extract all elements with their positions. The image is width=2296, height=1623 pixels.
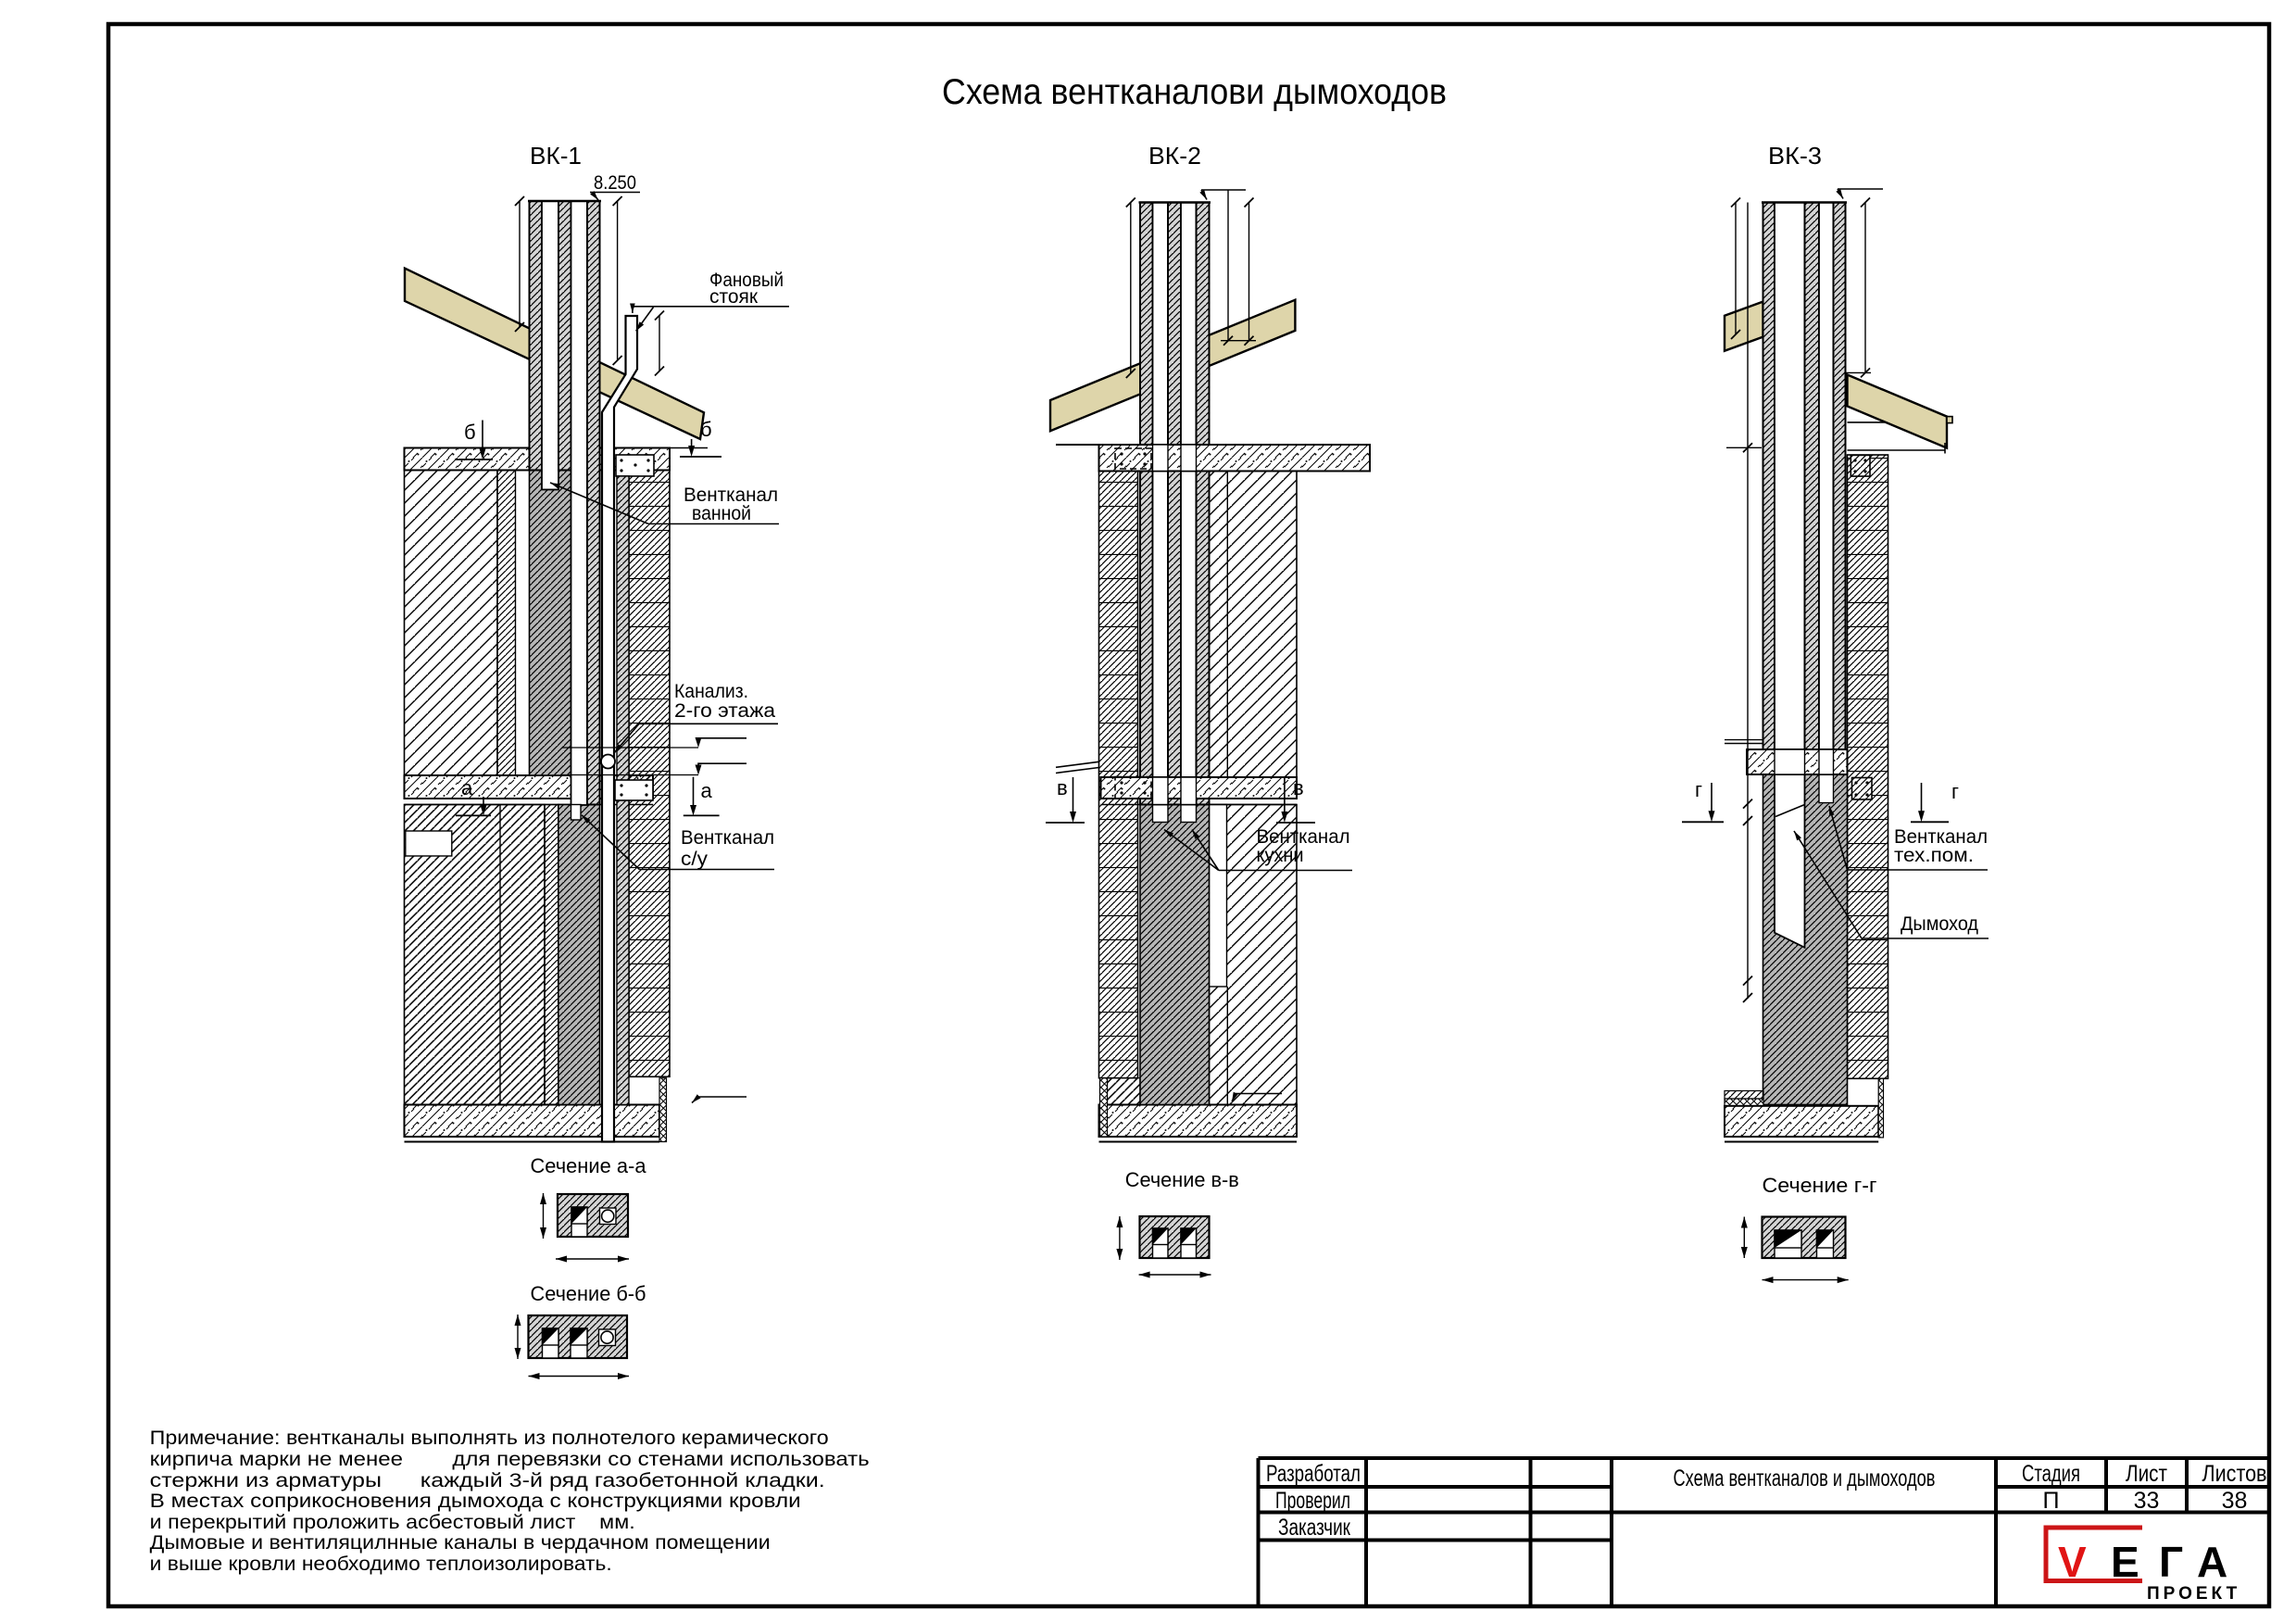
svg-text:Листов: Листов [2202, 1461, 2267, 1487]
svg-text:Е: Е [2111, 1538, 2139, 1586]
svg-text:2-го этажа: 2-го этажа [674, 700, 775, 722]
svg-text:ПРОЕКТ: ПРОЕКТ [2147, 1584, 2240, 1604]
svg-text:Схема вентканалови дымоходов: Схема вентканалови дымоходов [942, 72, 1447, 112]
svg-text:стержни из арматуры кажды: стержни из арматуры каждый 3-й ряд газоб… [150, 1470, 825, 1491]
svg-text:Вентканал: Вентканал [681, 827, 774, 849]
svg-text:Г: Г [2159, 1538, 2183, 1586]
svg-text:Дымоход: Дымоход [1901, 913, 1978, 935]
svg-text:а: а [701, 779, 713, 802]
svg-text:кирпича марки не менее: кирпича марки не менее для перевязки со … [150, 1449, 870, 1470]
svg-text:тех.пом.: тех.пом. [1894, 845, 1974, 866]
svg-text:Дымовые и вентиляцилнные канал: Дымовые и вентиляцилнные каналы в чердач… [150, 1532, 771, 1554]
svg-text:стояк: стояк [709, 286, 759, 308]
svg-text:8.250: 8.250 [594, 172, 636, 194]
svg-text:П: П [2043, 1488, 2060, 1514]
svg-text:а: а [461, 776, 473, 799]
svg-text:Проверил: Проверил [1275, 1488, 1350, 1514]
svg-text:ВК-2: ВК-2 [1148, 142, 1201, 170]
svg-text:Сечение в-в: Сечение в-в [1125, 1168, 1239, 1191]
svg-text:г: г [1695, 778, 1702, 801]
svg-text:г: г [1951, 780, 1959, 803]
svg-text:Заказчик: Заказчик [1278, 1515, 1351, 1541]
svg-text:А: А [2197, 1538, 2227, 1586]
svg-text:38: 38 [2222, 1488, 2248, 1514]
svg-text:В местах соприкосновения дымох: В местах соприкосновения дымохода с конс… [150, 1491, 801, 1512]
svg-text:Разработал: Разработал [1266, 1461, 1361, 1487]
svg-text:ванной: ванной [692, 503, 751, 524]
svg-text:и перекрытий проложить асбесто: и перекрытий проложить асбестовый лист м… [150, 1512, 635, 1533]
svg-text:в: в [1293, 776, 1304, 799]
svg-text:Сечение г-г: Сечение г-г [1763, 1174, 1877, 1197]
svg-text:с/у: с/у [681, 849, 709, 870]
svg-text:Сечение б-б: Сечение б-б [531, 1282, 646, 1305]
svg-text:б: б [464, 421, 476, 444]
svg-text:ВК-3: ВК-3 [1768, 142, 1822, 170]
svg-text:ВК-1: ВК-1 [530, 142, 582, 170]
svg-text:Примечание: вентканалы выполня: Примечание: вентканалы выполнять из полн… [150, 1428, 829, 1449]
svg-text:V: V [2058, 1538, 2087, 1586]
svg-text:Канализ.: Канализ. [674, 681, 748, 702]
svg-text:в: в [1057, 776, 1068, 799]
svg-text:Сечение а-а: Сечение а-а [531, 1154, 647, 1177]
svg-text:Лист: Лист [2126, 1461, 2167, 1487]
svg-text:и выше кровли необходимо тепло: и выше кровли необходимо теплоизолироват… [150, 1554, 612, 1575]
svg-text:б: б [700, 418, 712, 441]
svg-text:кухни: кухни [1257, 845, 1304, 866]
svg-text:Стадия: Стадия [2022, 1461, 2080, 1487]
svg-text:Схема вентканалов и дымоходов: Схема вентканалов и дымоходов [1674, 1466, 1936, 1491]
svg-text:33: 33 [2134, 1488, 2160, 1514]
